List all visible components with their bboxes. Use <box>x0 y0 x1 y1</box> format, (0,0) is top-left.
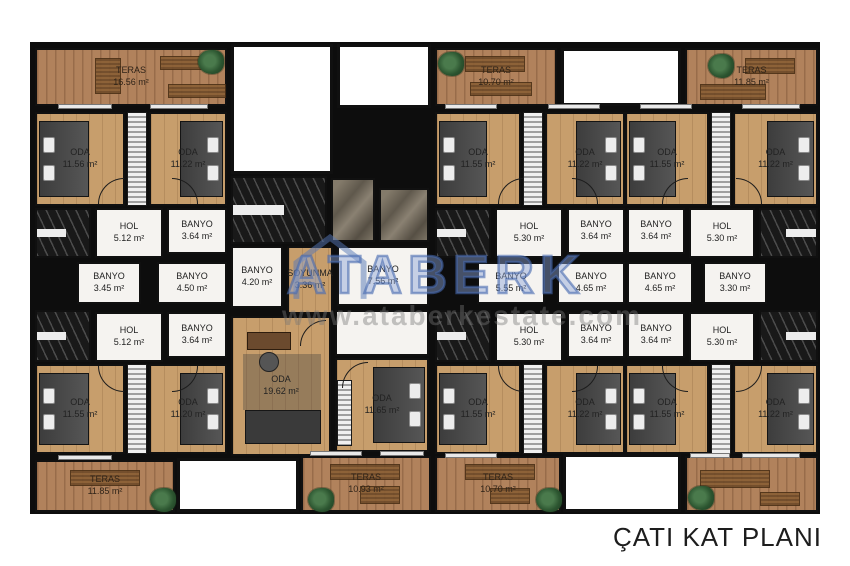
window <box>445 104 497 109</box>
room-label: BANYO3.30 m² <box>719 271 751 294</box>
plant-icon <box>536 488 562 512</box>
void-shaft <box>561 48 681 106</box>
room-banyo: BANYO4.65 m² <box>627 262 693 304</box>
room-label: TERAS10.70 m² <box>478 65 514 88</box>
room-banyo: BANYO3.45 m² <box>77 262 141 304</box>
room-label: ODA11.22 m² <box>758 147 793 170</box>
room-label: ODA19.62 m² <box>263 374 299 397</box>
wardrobe <box>127 364 147 454</box>
room-label: BANYO3.64 m² <box>181 323 213 346</box>
stairwell <box>759 208 818 258</box>
room-label: HOL5.30 m² <box>707 325 738 348</box>
floor-plan-canvas: TERAS16.56 m² ODA11.56 m² ODA11.22 m² HO… <box>0 0 850 566</box>
watermark-brand: ATABERK <box>287 244 585 306</box>
page-title: ÇATI KAT PLANI <box>613 522 822 553</box>
plant-icon <box>688 486 714 510</box>
room-hol: HOL5.12 m² <box>95 208 163 258</box>
room-label: BANYO3.64 m² <box>181 219 213 242</box>
room-label: TERAS11.85 m² <box>88 474 123 497</box>
sofa <box>245 410 321 444</box>
plant-icon <box>708 54 734 78</box>
plant-icon <box>438 52 464 76</box>
room-banyo: BANYO3.64 m² <box>167 312 227 358</box>
window <box>690 453 730 458</box>
wardrobe <box>337 380 352 446</box>
plant-icon <box>308 488 334 512</box>
room-label: TERAS16.56 m² <box>113 65 149 88</box>
room-hol: HOL5.30 m² <box>689 208 755 258</box>
rug <box>700 470 770 488</box>
chair <box>259 352 279 372</box>
rug <box>760 492 800 506</box>
watermark-url: www.ataberkestate.com <box>282 300 642 332</box>
room-label: ODA11.22 m² <box>758 397 793 420</box>
window <box>58 104 112 109</box>
room-banyo: BANYO4.20 m² <box>231 246 283 308</box>
room-banyo: BANYO3.64 m² <box>627 208 685 254</box>
room-label: ODA11.56 m² <box>63 147 98 170</box>
room-label: ODA11.55 m² <box>63 397 98 420</box>
room-label: BANYO3.64 m² <box>640 219 672 242</box>
room-hol: HOL5.30 m² <box>689 312 755 362</box>
room-label: HOL5.12 m² <box>114 221 145 244</box>
room-label: ODA11.22 m² <box>568 147 603 170</box>
elevator-shaft <box>379 188 429 242</box>
wardrobe <box>711 364 731 454</box>
room-banyo: BANYO3.64 m² <box>167 208 227 254</box>
window <box>150 104 208 109</box>
wardrobe <box>711 112 731 206</box>
window <box>742 453 800 458</box>
rug <box>168 84 226 98</box>
room-label: ODA11.65 m² <box>365 393 400 416</box>
room-label: HOL5.30 m² <box>707 221 738 244</box>
room-label: ODA11.22 m² <box>171 147 206 170</box>
desk <box>247 332 291 350</box>
void-shaft <box>231 44 333 174</box>
room-hol: HOL5.12 m² <box>95 312 163 362</box>
window <box>445 453 497 458</box>
window <box>58 455 112 460</box>
window <box>640 104 692 109</box>
wardrobe <box>127 112 147 206</box>
window <box>380 451 424 456</box>
room-label: TERAS10.93 m² <box>348 472 384 495</box>
stairwell <box>35 208 91 258</box>
void-shaft <box>177 458 299 512</box>
room-label: BANYO4.65 m² <box>644 271 676 294</box>
room-label: BANYO4.50 m² <box>176 271 208 294</box>
wardrobe <box>523 364 543 454</box>
plant-icon <box>150 488 176 512</box>
window <box>310 451 362 456</box>
wardrobe <box>523 112 543 206</box>
room-label: ODA11.20 m² <box>171 397 206 420</box>
room-banyo: BANYO4.50 m² <box>157 262 227 304</box>
plant-icon <box>198 50 224 74</box>
room-label: HOL5.30 m² <box>514 221 545 244</box>
window <box>548 104 600 109</box>
room-label: HOL5.12 m² <box>114 325 145 348</box>
room-label: ODA11.55 m² <box>461 397 496 420</box>
window <box>742 104 800 109</box>
stairwell <box>759 310 818 362</box>
room-label: BANYO3.64 m² <box>640 323 672 346</box>
room-label: ODA11.22 m² <box>568 397 603 420</box>
room-label: ODA11.55 m² <box>461 147 496 170</box>
room-label: BANYO4.20 m² <box>241 265 273 288</box>
room-label: BANYO3.45 m² <box>93 271 125 294</box>
room-label: TERAS11.85 m² <box>734 65 769 88</box>
void-shaft <box>563 454 681 512</box>
room-label: ODA11.55 m² <box>650 147 685 170</box>
stairwell <box>35 310 91 362</box>
room-label: BANYO3.64 m² <box>580 219 612 242</box>
room-label: TERAS10.70 m² <box>480 472 516 495</box>
room-banyo: BANYO3.30 m² <box>703 262 767 304</box>
room-label: ODA11.55 m² <box>650 397 685 420</box>
void-shaft <box>337 44 431 108</box>
